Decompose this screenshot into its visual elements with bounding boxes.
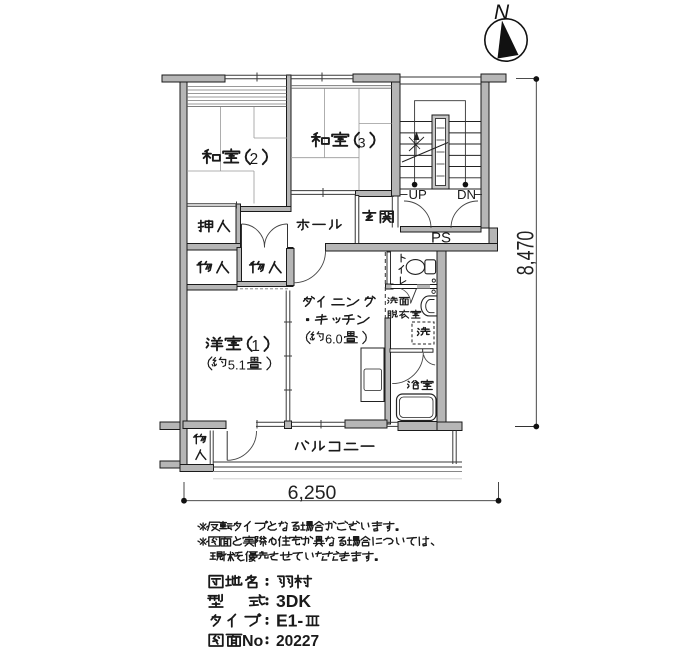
svg-text:6.0: 6.0 <box>325 333 343 347</box>
svg-text:6,250: 6,250 <box>288 482 337 504</box>
svg-text:DN: DN <box>457 187 476 202</box>
svg-text:5.1: 5.1 <box>228 358 246 373</box>
svg-text:UP: UP <box>409 187 428 202</box>
svg-text:N: N <box>494 1 510 24</box>
svg-text:8,470: 8,470 <box>513 231 539 275</box>
svg-text:20227: 20227 <box>276 633 319 650</box>
svg-text:1: 1 <box>251 338 260 355</box>
svg-text:3: 3 <box>358 134 366 150</box>
svg-text:No: No <box>242 633 264 650</box>
svg-text:E1-: E1- <box>276 611 303 631</box>
svg-text:2: 2 <box>250 151 259 168</box>
svg-text:3DK: 3DK <box>276 591 311 611</box>
svg-text:PS: PS <box>431 230 451 247</box>
